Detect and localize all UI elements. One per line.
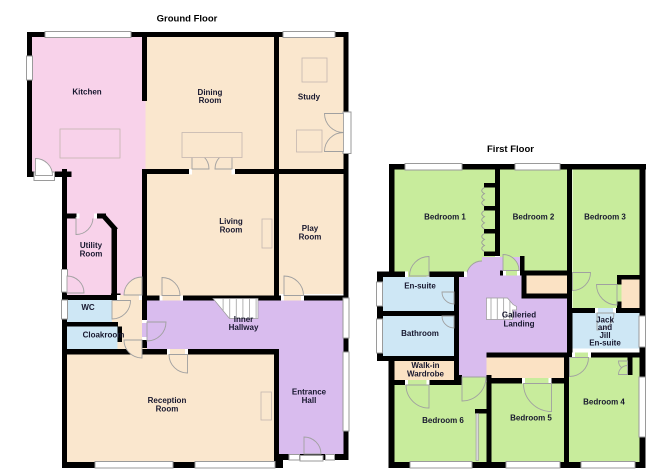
svg-text:Wardrobe: Wardrobe [407, 370, 445, 379]
svg-text:Room: Room [299, 233, 322, 242]
svg-text:En-suite: En-suite [404, 282, 436, 291]
svg-text:Room: Room [80, 250, 103, 259]
svg-text:Bedroom 1: Bedroom 1 [424, 213, 466, 222]
svg-text:First Floor: First Floor [487, 144, 534, 155]
svg-text:Bathroom: Bathroom [401, 329, 439, 338]
svg-text:Bedroom 4: Bedroom 4 [583, 398, 625, 407]
svg-text:WC: WC [81, 303, 95, 312]
svg-text:Bedroom 3: Bedroom 3 [584, 213, 626, 222]
svg-text:Study: Study [298, 93, 321, 102]
svg-text:En-suite: En-suite [589, 339, 621, 348]
svg-text:Hall: Hall [302, 396, 317, 405]
svg-text:Bedroom 5: Bedroom 5 [510, 414, 552, 423]
svg-text:Room: Room [199, 96, 222, 105]
svg-text:Bedroom 6: Bedroom 6 [422, 416, 464, 425]
svg-text:Hallway: Hallway [229, 323, 259, 332]
svg-text:Room: Room [156, 405, 179, 414]
svg-text:Kitchen: Kitchen [72, 88, 101, 97]
svg-text:Galleried: Galleried [502, 311, 536, 320]
svg-text:Landing: Landing [503, 320, 534, 329]
svg-text:Room: Room [220, 226, 243, 235]
svg-text:Bedroom 2: Bedroom 2 [513, 213, 555, 222]
svg-text:Cloakroom: Cloakroom [83, 331, 125, 340]
svg-text:Ground Floor: Ground Floor [157, 14, 218, 25]
